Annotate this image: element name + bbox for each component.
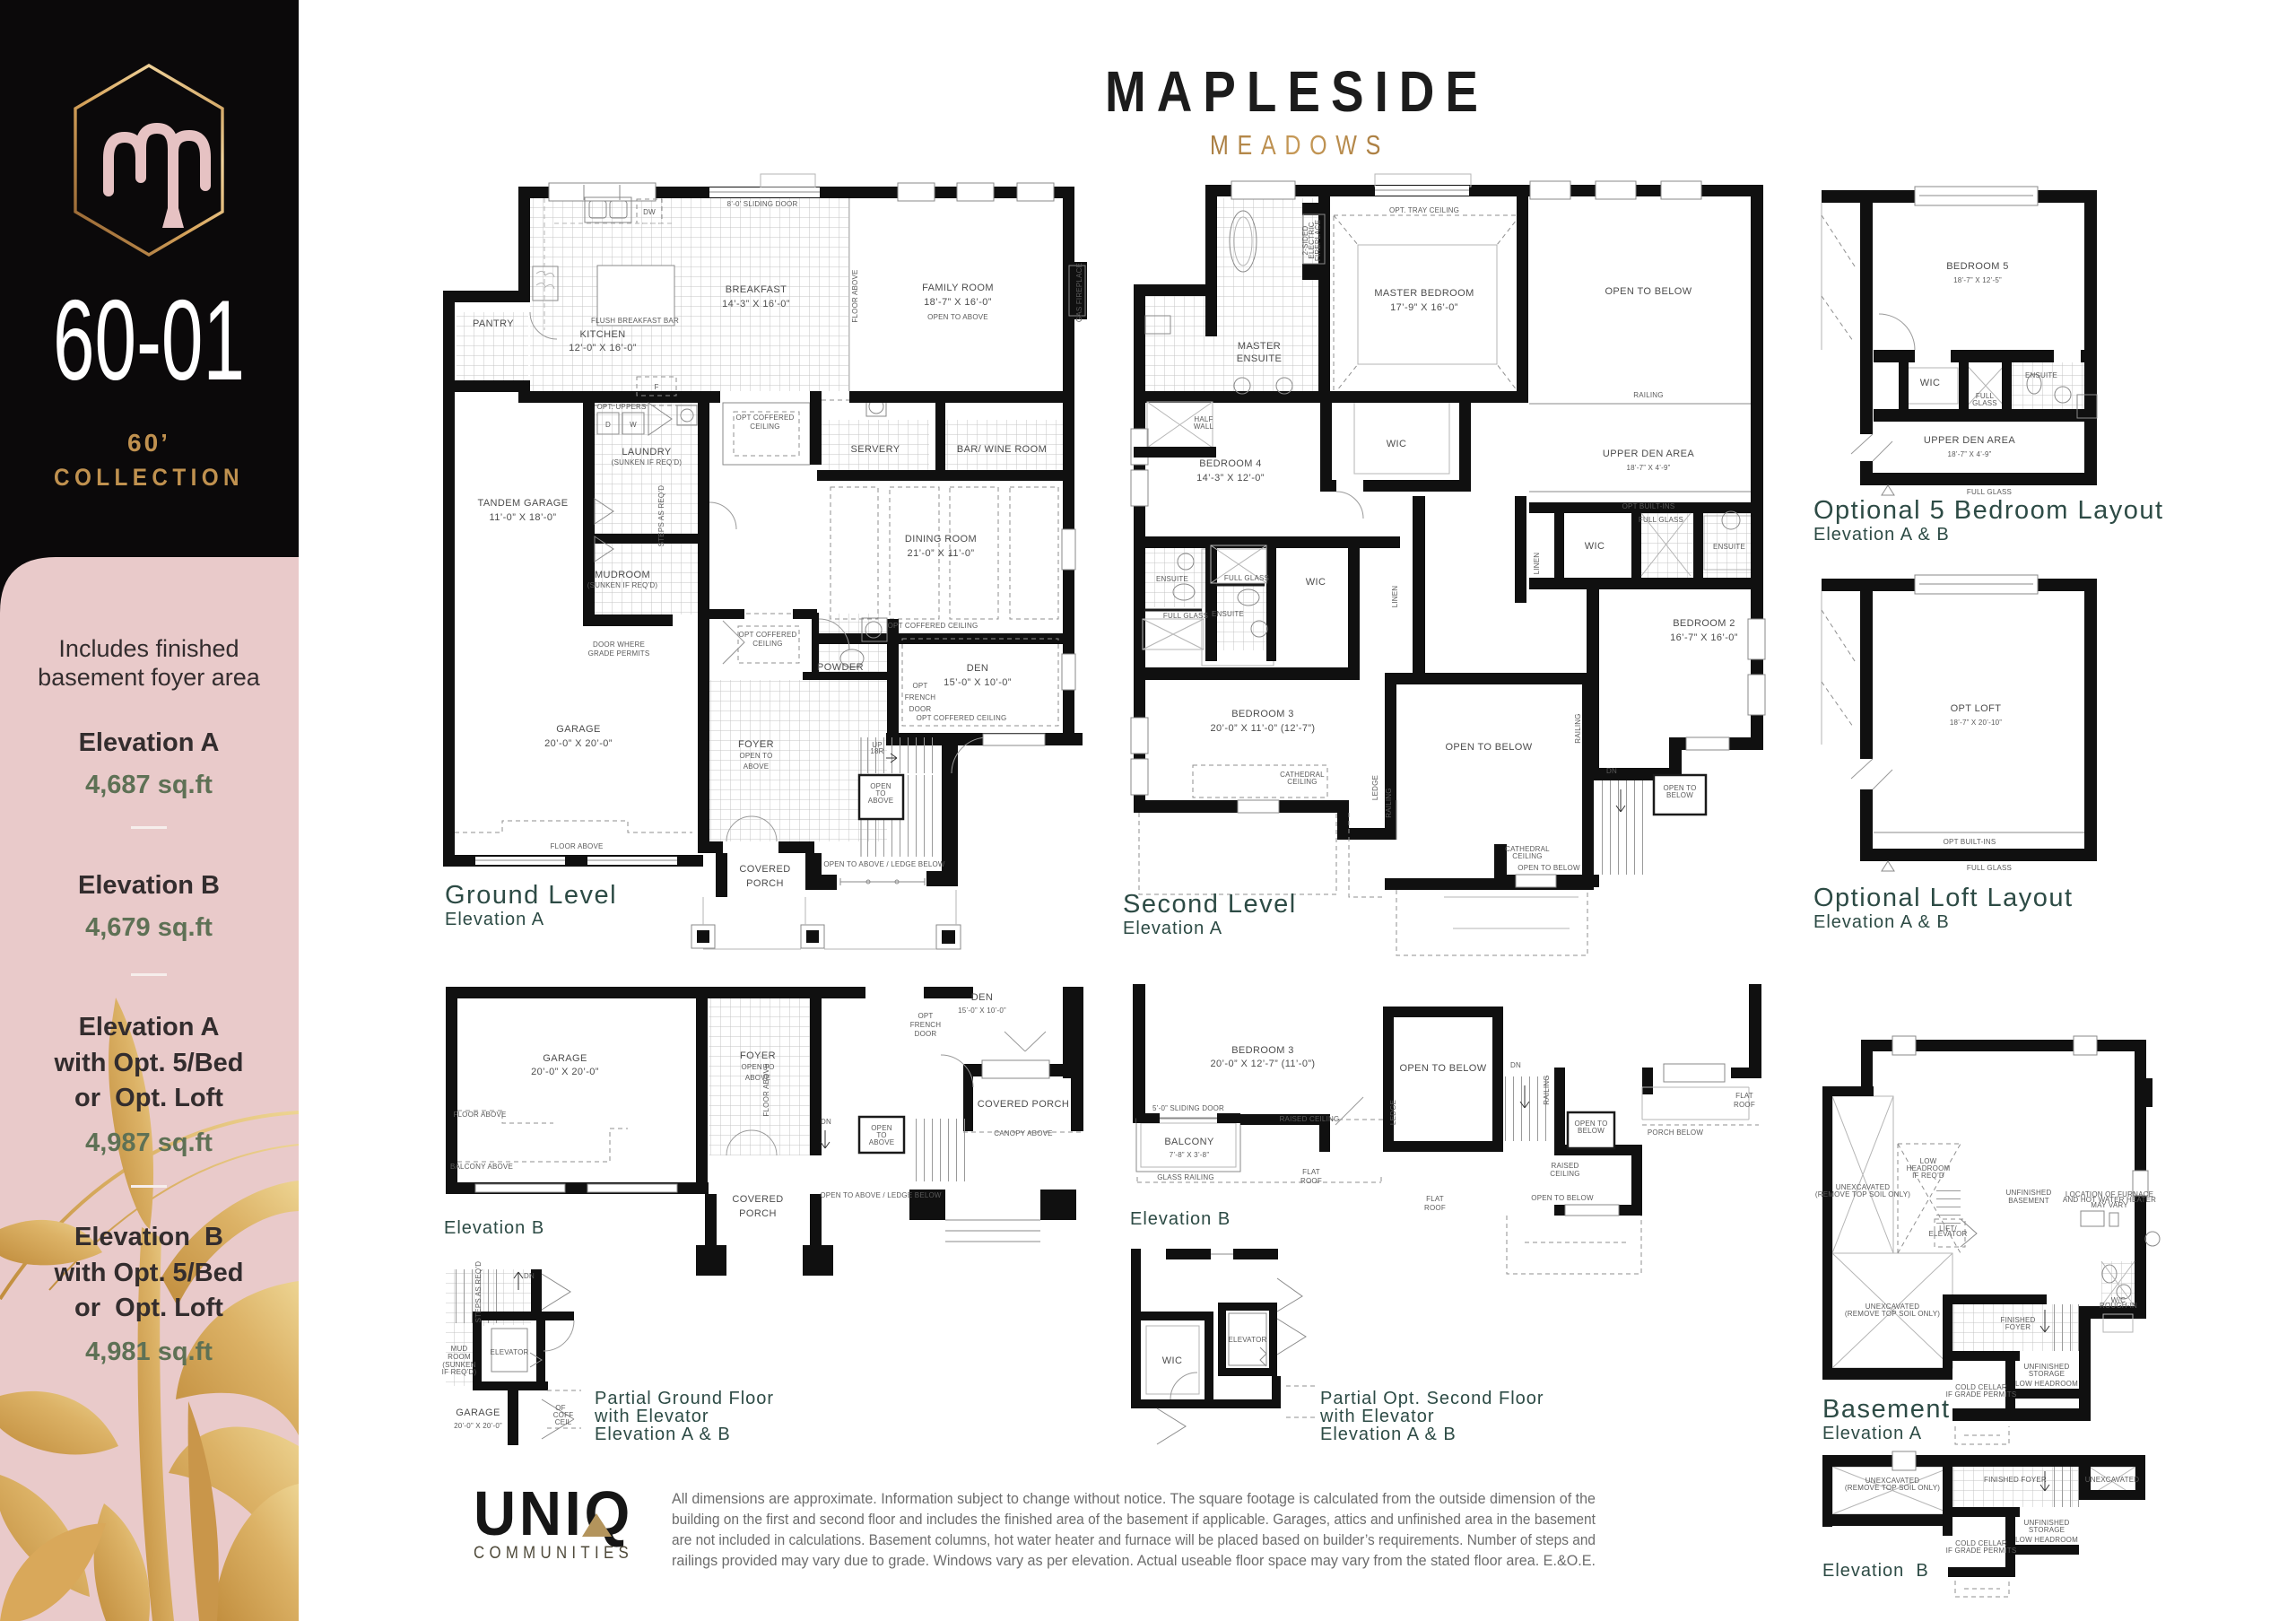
svg-text:D: D	[605, 421, 611, 429]
svg-text:Elevation A: Elevation A	[79, 1013, 220, 1041]
svg-text:14’-3” X 16’-0”: 14’-3” X 16’-0”	[722, 299, 790, 309]
svg-text:ROOF: ROOF	[1734, 1101, 1755, 1109]
svg-text:PANTRY: PANTRY	[473, 318, 514, 329]
svg-text:DN: DN	[1510, 1061, 1521, 1069]
svg-text:PORCH: PORCH	[746, 878, 784, 889]
svg-text:Optional 5 Bedroom Layout: Optional 5 Bedroom Layout	[1813, 496, 2164, 525]
svg-text:Optional Loft Layout: Optional Loft Layout	[1813, 884, 2074, 912]
svg-text:14’-3” X 12’-0”: 14’-3” X 12’-0”	[1196, 473, 1265, 484]
svg-text:ABOVE: ABOVE	[869, 1138, 895, 1146]
svg-text:ELEVATOR: ELEVATOR	[1929, 1230, 1968, 1238]
svg-text:17’-9” X 16’-0”: 17’-9” X 16’-0”	[1390, 302, 1458, 313]
svg-text:CEIL: CEIL	[555, 1418, 572, 1426]
svg-text:STEPS AS REQ’D: STEPS AS REQ’D	[474, 1261, 483, 1323]
svg-text:Elevation B: Elevation B	[74, 1223, 223, 1251]
svg-text:RAILING: RAILING	[1385, 788, 1393, 817]
svg-text:FLUSH BREAKFAST BAR: FLUSH BREAKFAST BAR	[591, 317, 679, 325]
svg-text:ROOF: ROOF	[1300, 1177, 1322, 1185]
svg-text:with Opt. 5/Bed: with Opt. 5/Bed	[53, 1049, 243, 1077]
svg-text:IF REQ’D): IF REQ’D)	[442, 1368, 477, 1376]
svg-text:20’-0” X 20’-0”: 20’-0” X 20’-0”	[544, 738, 613, 749]
svg-text:MASTER BEDROOM: MASTER BEDROOM	[1374, 288, 1474, 299]
svg-text:Elevation A: Elevation A	[79, 728, 220, 757]
svg-text:Second Level: Second Level	[1123, 890, 1297, 919]
svg-text:IF REQ’D: IF REQ’D	[1912, 1172, 1944, 1180]
svg-text:MEADOWS: MEADOWS	[1210, 129, 1389, 161]
svg-text:OPT COFFERED CEILING: OPT COFFERED CEILING	[888, 622, 978, 630]
svg-text:or Opt. Loft: or Opt. Loft	[74, 1084, 223, 1112]
svg-text:4,687 sq.ft: 4,687 sq.ft	[85, 771, 213, 799]
svg-text:WIC: WIC	[1306, 577, 1326, 588]
svg-text:4,987 sq.ft: 4,987 sq.ft	[85, 1129, 213, 1157]
svg-text:MUDROOM: MUDROOM	[595, 570, 650, 580]
svg-text:20’-0” X 20’-0”: 20’-0” X 20’-0”	[454, 1422, 502, 1430]
svg-text:POWDER: POWDER	[817, 662, 864, 673]
svg-text:RAILING: RAILING	[1574, 713, 1582, 743]
svg-text:DEN: DEN	[967, 663, 988, 674]
svg-text:ENSUITE: ENSUITE	[1237, 353, 1282, 364]
svg-text:F: F	[654, 383, 658, 391]
svg-text:GLASS: GLASS	[1972, 399, 1997, 407]
svg-text:OPT BUILT-INS: OPT BUILT-INS	[1622, 502, 1675, 510]
svg-text:ENSUITE: ENSUITE	[1713, 543, 1745, 551]
svg-text:Elevation A & B: Elevation A & B	[1320, 1425, 1457, 1444]
svg-text:FINISHED FOYER: FINISHED FOYER	[1984, 1476, 2047, 1484]
svg-text:60’: 60’	[127, 429, 170, 457]
svg-text:ROOF: ROOF	[1424, 1204, 1446, 1212]
svg-text:LINEN: LINEN	[1391, 586, 1399, 608]
svg-text:OPT. UPPERS: OPT. UPPERS	[596, 403, 646, 411]
svg-text:STORAGE: STORAGE	[2029, 1370, 2065, 1378]
svg-text:Elevation A: Elevation A	[1822, 1424, 1922, 1443]
svg-text:FRENCH: FRENCH	[905, 693, 936, 702]
svg-text:or Opt. Loft: or Opt. Loft	[74, 1294, 223, 1322]
svg-text:12’-0” X 16’-0”: 12’-0” X 16’-0”	[569, 343, 637, 353]
svg-text:Elevation A & B: Elevation A & B	[1813, 525, 1950, 545]
svg-text:MUD: MUD	[451, 1345, 468, 1353]
svg-text:OPEN TO BELOW: OPEN TO BELOW	[1399, 1063, 1486, 1074]
svg-text:FULL GLASS: FULL GLASS	[1639, 516, 1683, 524]
svg-text:Elevation B: Elevation B	[78, 871, 220, 900]
svg-text:STORAGE: STORAGE	[2029, 1526, 2065, 1534]
svg-text:UNEXCAVATED: UNEXCAVATED	[2085, 1476, 2139, 1484]
svg-text:OPEN TO: OPEN TO	[739, 752, 772, 760]
svg-text:RAILING: RAILING	[1543, 1075, 1551, 1104]
svg-text:DN: DN	[821, 1118, 831, 1126]
svg-text:FULL GLASS: FULL GLASS	[1967, 864, 2012, 872]
svg-text:Basement: Basement	[1822, 1395, 1951, 1424]
svg-text:FLAT: FLAT	[1426, 1195, 1444, 1203]
svg-text:FLOOR ABOVE: FLOOR ABOVE	[550, 842, 603, 850]
svg-text:WIC: WIC	[1920, 378, 1941, 388]
svg-text:DOOR: DOOR	[909, 705, 932, 713]
svg-text:OPEN TO BELOW: OPEN TO BELOW	[1605, 286, 1692, 297]
svg-text:LEDGE: LEDGE	[1371, 775, 1379, 800]
svg-text:DOOR: DOOR	[915, 1030, 937, 1038]
svg-text:8’-0’ SLIDING DOOR: 8’-0’ SLIDING DOOR	[727, 200, 798, 208]
svg-text:20’-0” X 11’-0” (12’-7”): 20’-0” X 11’-0” (12’-7”)	[1211, 723, 1316, 734]
svg-text:All dimensions are approximate: All dimensions are approximate. Informat…	[672, 1490, 1596, 1507]
svg-text:BEDROOM 4: BEDROOM 4	[1199, 458, 1262, 469]
svg-text:CEILING: CEILING	[752, 640, 782, 648]
svg-text:RAISED CEILING: RAISED CEILING	[1280, 1115, 1340, 1123]
svg-text:MASTER: MASTER	[1238, 341, 1281, 352]
svg-text:WIC: WIC	[1585, 541, 1605, 552]
svg-text:Includes finished: Includes finished	[58, 635, 239, 662]
svg-text:OPT. TRAY CEILING: OPT. TRAY CEILING	[1389, 206, 1459, 214]
svg-text:CEILING: CEILING	[1550, 1170, 1579, 1178]
svg-text:21’-0” X 11’-0”: 21’-0” X 11’-0”	[908, 548, 975, 559]
svg-text:LINEN: LINEN	[1533, 553, 1541, 575]
svg-text:COMMUNITIES: COMMUNITIES	[474, 1544, 633, 1563]
svg-text:BEDROOM 5: BEDROOM 5	[1946, 261, 2009, 272]
svg-text:15’-0” X 10’-0”: 15’-0” X 10’-0”	[958, 1007, 1006, 1015]
svg-text:18’-7” X 20’-10”: 18’-7” X 20’-10”	[1950, 719, 2002, 727]
svg-text:CEILING: CEILING	[1512, 852, 1542, 860]
svg-text:OPEN TO BELOW: OPEN TO BELOW	[1445, 742, 1532, 753]
svg-text:DINING ROOM: DINING ROOM	[905, 534, 977, 545]
svg-text:OPEN TO BELOW: OPEN TO BELOW	[1518, 864, 1580, 872]
svg-text:OPT COFFERED: OPT COFFERED	[736, 414, 795, 422]
svg-text:GAS FIREPLACE: GAS FIREPLACE	[1075, 263, 1083, 322]
svg-text:Elevation A: Elevation A	[1123, 919, 1222, 938]
svg-text:Elevation A & B: Elevation A & B	[595, 1425, 731, 1444]
svg-text:railings provided may vary due: railings provided may vary due to grade.…	[672, 1552, 1596, 1569]
svg-text:FLAT: FLAT	[1735, 1092, 1753, 1100]
svg-text:BEDROOM 3: BEDROOM 3	[1231, 709, 1294, 719]
svg-text:DN: DN	[524, 1272, 535, 1280]
svg-text:FOYER: FOYER	[2005, 1323, 2031, 1331]
svg-text:ABOVE: ABOVE	[868, 797, 894, 805]
svg-text:(SUNKEN IF REQ’D): (SUNKEN IF REQ’D)	[587, 581, 658, 589]
svg-text:(REMOVE TOP SOIL ONLY): (REMOVE TOP SOIL ONLY)	[1845, 1484, 1940, 1492]
svg-text:Partial Opt. Second Floor: Partial Opt. Second Floor	[1320, 1389, 1544, 1408]
svg-text:CANOPY ABOVE: CANOPY ABOVE	[994, 1129, 1052, 1137]
svg-text:11’-0” X 18’-0”: 11’-0” X 18’-0”	[490, 512, 557, 523]
svg-text:LAUNDRY: LAUNDRY	[622, 447, 671, 458]
svg-text:18’-7” X 12’-5”: 18’-7” X 12’-5”	[1953, 276, 2002, 284]
svg-text:FULL GLASS: FULL GLASS	[1163, 612, 1208, 620]
svg-text:with Opt. 5/Bed: with Opt. 5/Bed	[53, 1259, 243, 1287]
svg-text:16’-7” X 16’-0”: 16’-7” X 16’-0”	[1670, 632, 1738, 643]
svg-text:OPT LOFT: OPT LOFT	[1951, 703, 2002, 714]
svg-text:LOW HEADROOM: LOW HEADROOM	[2015, 1380, 2078, 1388]
svg-text:with Elevator: with Elevator	[594, 1407, 709, 1426]
svg-text:COVERED: COVERED	[739, 864, 790, 875]
svg-text:ROUGH-IN: ROUGH-IN	[2100, 1302, 2137, 1310]
svg-text:BELOW: BELOW	[1578, 1127, 1605, 1135]
svg-text:(REMOVE TOP SOIL ONLY): (REMOVE TOP SOIL ONLY)	[1815, 1190, 1910, 1198]
svg-text:FLOOR ABOVE: FLOOR ABOVE	[762, 1063, 770, 1116]
svg-text:ELEVATOR: ELEVATOR	[1229, 1336, 1267, 1344]
svg-text:18’-7” X 4’-9”: 18’-7” X 4’-9”	[1626, 464, 1670, 472]
svg-text:OPT COFFERED: OPT COFFERED	[739, 631, 797, 639]
svg-text:FIREPLACE: FIREPLACE	[1314, 220, 1322, 261]
svg-text:4,981 sq.ft: 4,981 sq.ft	[85, 1338, 213, 1366]
svg-text:GLASS RAILING: GLASS RAILING	[1157, 1173, 1214, 1181]
svg-text:18’-7” X 16’-0”: 18’-7” X 16’-0”	[924, 297, 992, 308]
svg-text:PORCH BELOW: PORCH BELOW	[1648, 1129, 1703, 1137]
svg-text:(REMOVE TOP SOIL ONLY): (REMOVE TOP SOIL ONLY)	[1845, 1310, 1940, 1318]
svg-text:SERVERY: SERVERY	[851, 444, 900, 455]
svg-text:IF GRADE PERMITS: IF GRADE PERMITS	[1946, 1390, 2017, 1399]
svg-text:RAILING: RAILING	[1633, 391, 1663, 399]
svg-text:ROOM: ROOM	[448, 1353, 471, 1361]
svg-text:BASEMENT: BASEMENT	[2008, 1197, 2049, 1205]
svg-text:Ground Level: Ground Level	[445, 881, 617, 910]
svg-text:GARAGE: GARAGE	[456, 1407, 500, 1418]
svg-text:BALCONY: BALCONY	[1164, 1137, 1214, 1147]
svg-text:OPEN TO BELOW: OPEN TO BELOW	[1531, 1194, 1594, 1202]
svg-text:DW: DW	[643, 208, 656, 216]
svg-text:4,679 sq.ft: 4,679 sq.ft	[85, 913, 213, 942]
svg-text:BEDROOM 2: BEDROOM 2	[1673, 618, 1735, 629]
svg-text:ENSUITE: ENSUITE	[1212, 610, 1244, 618]
svg-text:BREAKFAST: BREAKFAST	[726, 284, 787, 295]
svg-text:OPT: OPT	[912, 682, 927, 690]
svg-text:Elevation A: Elevation A	[445, 910, 544, 929]
svg-text:FULL GLASS: FULL GLASS	[1967, 488, 2012, 496]
svg-text:DOOR WHERE: DOOR WHERE	[593, 641, 645, 649]
svg-text:RAISED: RAISED	[1552, 1162, 1579, 1170]
svg-text:TANDEM GARAGE: TANDEM GARAGE	[478, 498, 569, 509]
svg-text:LEDGE: LEDGE	[1389, 1100, 1397, 1125]
svg-text:COVERED: COVERED	[732, 1194, 783, 1205]
svg-text:OPEN TO ABOVE: OPEN TO ABOVE	[927, 313, 988, 321]
svg-text:GARAGE: GARAGE	[543, 1053, 587, 1064]
svg-text:5’-0” SLIDING DOOR: 5’-0” SLIDING DOOR	[1152, 1104, 1224, 1112]
svg-text:OPT COFFERED CEILING: OPT COFFERED CEILING	[917, 714, 1007, 722]
svg-text:Elevation B: Elevation B	[1130, 1209, 1231, 1229]
svg-text:ELEVATOR: ELEVATOR	[491, 1348, 529, 1356]
svg-text:DN: DN	[1606, 767, 1617, 775]
svg-text:18R: 18R	[870, 747, 883, 755]
svg-text:UNFINISHED: UNFINISHED	[2006, 1189, 2052, 1197]
svg-text:FAMILY ROOM: FAMILY ROOM	[922, 283, 994, 293]
svg-text:OPEN TO ABOVE / LEDGE BELOW: OPEN TO ABOVE / LEDGE BELOW	[820, 1191, 942, 1199]
svg-text:BELOW: BELOW	[1666, 791, 1693, 799]
svg-text:15’-0” X 10’-0”: 15’-0” X 10’-0”	[944, 677, 1012, 688]
svg-text:FLOOR ABOVE: FLOOR ABOVE	[453, 1111, 506, 1119]
svg-text:(SUNKEN IF REQ’D): (SUNKEN IF REQ’D)	[612, 458, 683, 466]
svg-text:WIC: WIC	[1162, 1355, 1183, 1366]
svg-text:FULL GLASS: FULL GLASS	[1224, 574, 1269, 582]
svg-text:CEILING: CEILING	[1287, 778, 1317, 786]
svg-text:COVERED PORCH: COVERED PORCH	[978, 1099, 1069, 1110]
svg-text:BAR/ WINE ROOM: BAR/ WINE ROOM	[957, 444, 1047, 455]
svg-text:with Elevator: with Elevator	[1319, 1407, 1435, 1426]
svg-text:building on the first and seco: building on the first and second floor a…	[672, 1511, 1596, 1528]
svg-text:WALL: WALL	[1194, 423, 1214, 431]
svg-text:DEN: DEN	[971, 992, 993, 1003]
svg-text:BALCONY ABOVE: BALCONY ABOVE	[450, 1163, 513, 1171]
svg-text:FLAT: FLAT	[1302, 1168, 1320, 1176]
svg-text:OPT: OPT	[918, 1012, 933, 1020]
svg-text:ENSUITE: ENSUITE	[1156, 575, 1188, 583]
svg-text:OPT BUILT-INS: OPT BUILT-INS	[1944, 838, 1996, 846]
svg-text:PORCH: PORCH	[739, 1208, 777, 1219]
svg-text:WIC: WIC	[1387, 439, 1407, 449]
svg-text:FOYER: FOYER	[740, 1050, 776, 1061]
svg-text:W: W	[630, 421, 637, 429]
svg-text:COLLECTION: COLLECTION	[54, 464, 244, 491]
svg-text:UPPER DEN AREA: UPPER DEN AREA	[1924, 435, 2015, 446]
svg-text:MAY VARY: MAY VARY	[2091, 1201, 2128, 1209]
svg-text:Elevation A & B: Elevation A & B	[1813, 912, 1950, 932]
svg-text:Elevation B: Elevation B	[444, 1218, 544, 1238]
svg-text:are not included in calculatio: are not included in calculations. Baseme…	[672, 1531, 1596, 1548]
svg-text:BEDROOM 3: BEDROOM 3	[1231, 1045, 1294, 1056]
svg-text:20’-0” X 20’-0”: 20’-0” X 20’-0”	[531, 1067, 599, 1077]
svg-text:GARAGE: GARAGE	[556, 724, 600, 735]
svg-text:7’-8” X 3’-8”: 7’-8” X 3’-8”	[1170, 1151, 1210, 1159]
svg-text:UNIQ: UNIQ	[474, 1478, 633, 1548]
svg-text:20’-0” X 12’-7” (11’-0”): 20’-0” X 12’-7” (11’-0”)	[1211, 1059, 1316, 1069]
svg-text:basement foyer area: basement foyer area	[38, 664, 261, 691]
svg-text:FLOOR ABOVE: FLOOR ABOVE	[851, 269, 859, 322]
svg-text:KITCHEN: KITCHEN	[579, 329, 625, 340]
svg-text:FRENCH: FRENCH	[910, 1021, 942, 1029]
svg-text:60-01: 60-01	[53, 276, 245, 404]
svg-text:CEILING: CEILING	[750, 423, 779, 431]
svg-text:ENSUITE: ENSUITE	[2025, 371, 2057, 379]
svg-text:UPPER DEN AREA: UPPER DEN AREA	[1603, 449, 1694, 459]
svg-text:GRADE PERMITS: GRADE PERMITS	[588, 649, 650, 658]
svg-text:MAPLESIDE: MAPLESIDE	[1105, 59, 1489, 124]
svg-text:STEPS AS REQ’D: STEPS AS REQ’D	[657, 485, 665, 547]
svg-text:Elevation B: Elevation B	[1822, 1561, 1929, 1581]
svg-text:OPEN TO ABOVE / LEDGE BELOW: OPEN TO ABOVE / LEDGE BELOW	[823, 860, 945, 868]
svg-text:Partial Ground Floor: Partial Ground Floor	[595, 1389, 774, 1408]
svg-text:FOYER: FOYER	[738, 739, 774, 750]
svg-text:LOW HEADROOM: LOW HEADROOM	[2015, 1536, 2078, 1544]
svg-text:IF GRADE PERMITS: IF GRADE PERMITS	[1946, 1547, 2017, 1555]
svg-text:18’-7” X 4’-9”: 18’-7” X 4’-9”	[1947, 450, 1991, 458]
svg-text:ABOVE: ABOVE	[744, 763, 770, 771]
